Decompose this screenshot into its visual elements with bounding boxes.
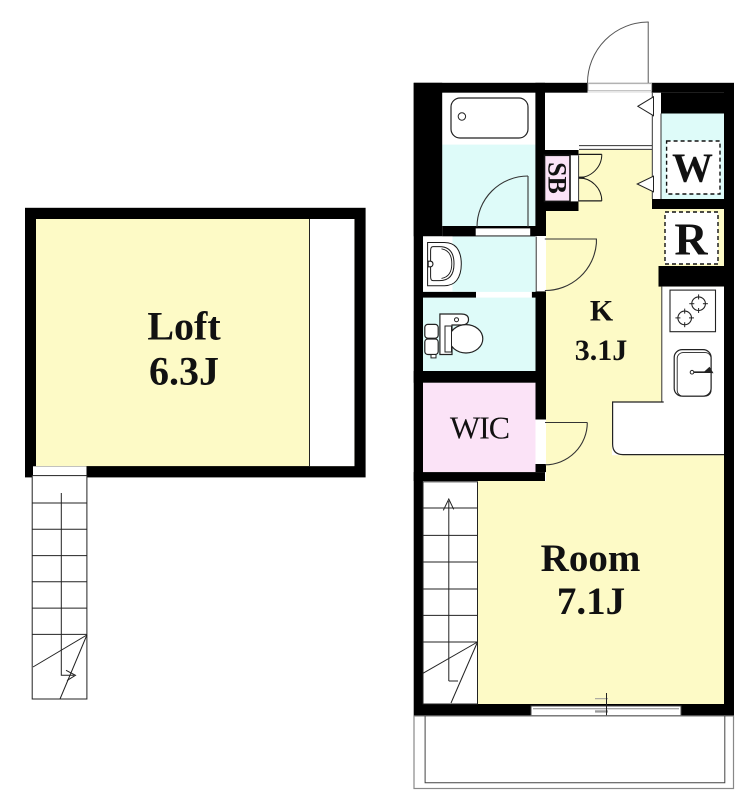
svg-text:Room: Room	[541, 537, 641, 580]
svg-text:K: K	[590, 295, 614, 328]
svg-text:6.3J: 6.3J	[149, 349, 219, 394]
svg-text:R: R	[674, 214, 708, 265]
svg-text:3.1J: 3.1J	[575, 334, 628, 367]
svg-text:7.1J: 7.1J	[557, 580, 625, 623]
svg-text:Loft: Loft	[147, 304, 221, 349]
svg-text:W: W	[672, 145, 713, 191]
svg-text:WIC: WIC	[450, 410, 509, 446]
svg-text:SB: SB	[543, 162, 572, 194]
